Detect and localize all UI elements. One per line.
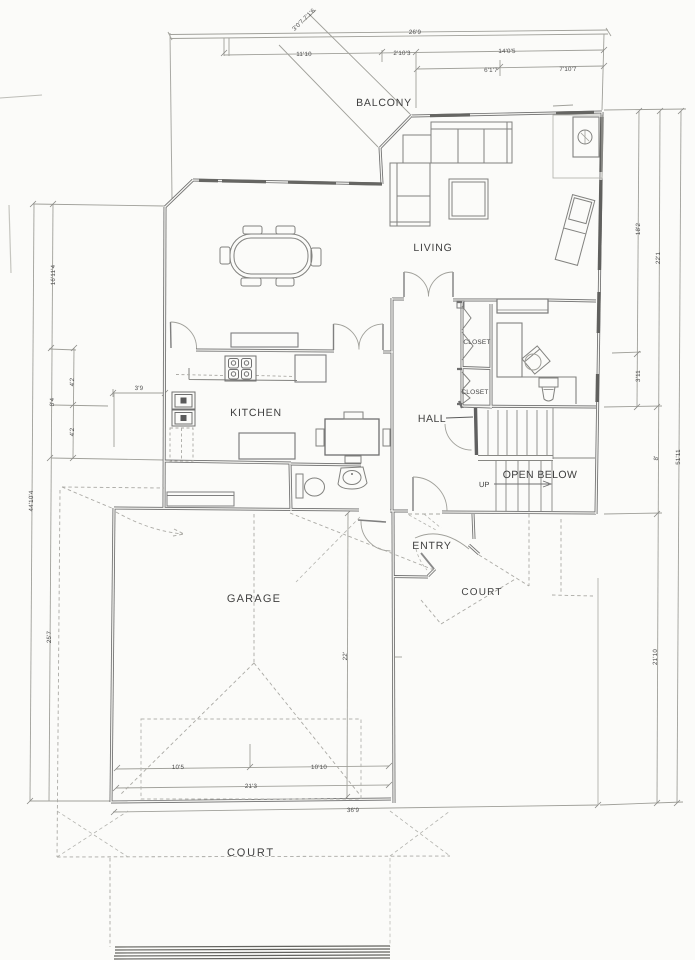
- svg-text:3'9: 3'9: [135, 385, 144, 392]
- svg-text:3'11: 3'11: [635, 370, 642, 382]
- svg-text:CLOSET: CLOSET: [461, 389, 488, 396]
- svg-text:4'2: 4'2: [69, 427, 76, 436]
- svg-text:51'11: 51'11: [675, 449, 682, 465]
- svg-text:21'3: 21'3: [245, 783, 258, 790]
- svg-text:25'7: 25'7: [46, 630, 53, 643]
- svg-text:GARAGE: GARAGE: [227, 593, 281, 605]
- svg-text:8': 8': [653, 455, 660, 460]
- svg-text:44'10'4: 44'10'4: [28, 490, 35, 511]
- svg-text:HALL: HALL: [418, 413, 446, 425]
- svg-text:4'2: 4'2: [69, 377, 76, 386]
- svg-text:LIVING: LIVING: [413, 242, 452, 254]
- svg-text:KITCHEN: KITCHEN: [230, 407, 282, 419]
- svg-text:10'5: 10'5: [172, 764, 185, 771]
- svg-text:11'10: 11'10: [296, 51, 312, 58]
- svg-text:18'2: 18'2: [635, 222, 642, 235]
- svg-text:COURT: COURT: [461, 587, 502, 598]
- svg-text:26'9: 26'9: [409, 29, 422, 36]
- svg-text:8'4: 8'4: [49, 397, 56, 406]
- svg-text:2'10'3: 2'10'3: [393, 50, 411, 57]
- svg-text:7'10'7: 7'10'7: [559, 66, 577, 73]
- svg-text:CLOSET: CLOSET: [463, 339, 490, 346]
- svg-text:22'1: 22'1: [655, 251, 662, 264]
- svg-text:6'1'7: 6'1'7: [484, 67, 498, 74]
- svg-text:UP: UP: [479, 480, 489, 489]
- svg-text:COURT: COURT: [227, 847, 275, 859]
- svg-text:ENTRY: ENTRY: [412, 540, 451, 552]
- svg-text:22': 22': [342, 652, 349, 661]
- svg-text:10'10: 10'10: [311, 764, 327, 771]
- svg-text:14'0'5: 14'0'5: [498, 48, 516, 55]
- svg-text:21'10: 21'10: [652, 649, 659, 665]
- svg-text:36'9: 36'9: [347, 807, 360, 814]
- svg-text:BALCONY: BALCONY: [356, 97, 412, 109]
- svg-text:OPEN BELOW: OPEN BELOW: [503, 469, 578, 481]
- svg-text:16'11'4: 16'11'4: [50, 264, 57, 285]
